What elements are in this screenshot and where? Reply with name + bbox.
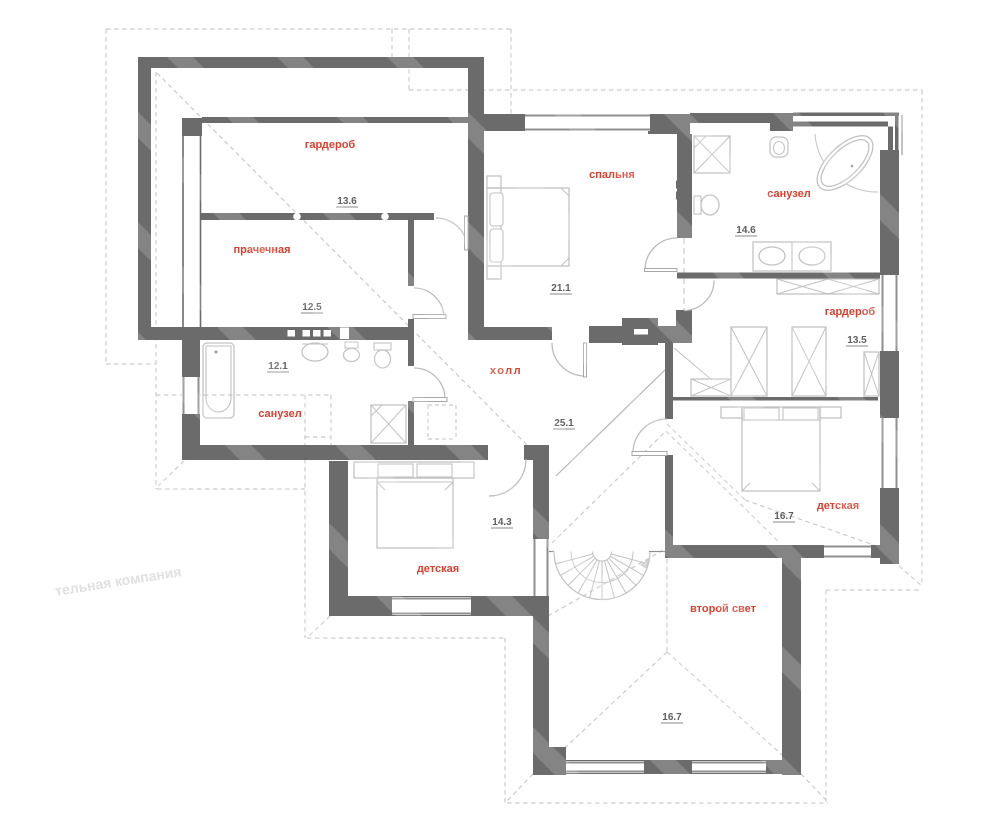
svg-text:санузел: санузел [258,408,301,420]
svg-text:14.3: 14.3 [492,517,512,528]
svg-text:гардероб: гардероб [305,139,356,151]
svg-text:21.1: 21.1 [551,283,571,294]
svg-text:16.7: 16.7 [774,511,794,522]
svg-text:13.5: 13.5 [847,335,867,346]
svg-text:16.7: 16.7 [662,712,682,723]
svg-text:14.6: 14.6 [736,225,756,236]
svg-text:детская: детская [417,563,459,575]
